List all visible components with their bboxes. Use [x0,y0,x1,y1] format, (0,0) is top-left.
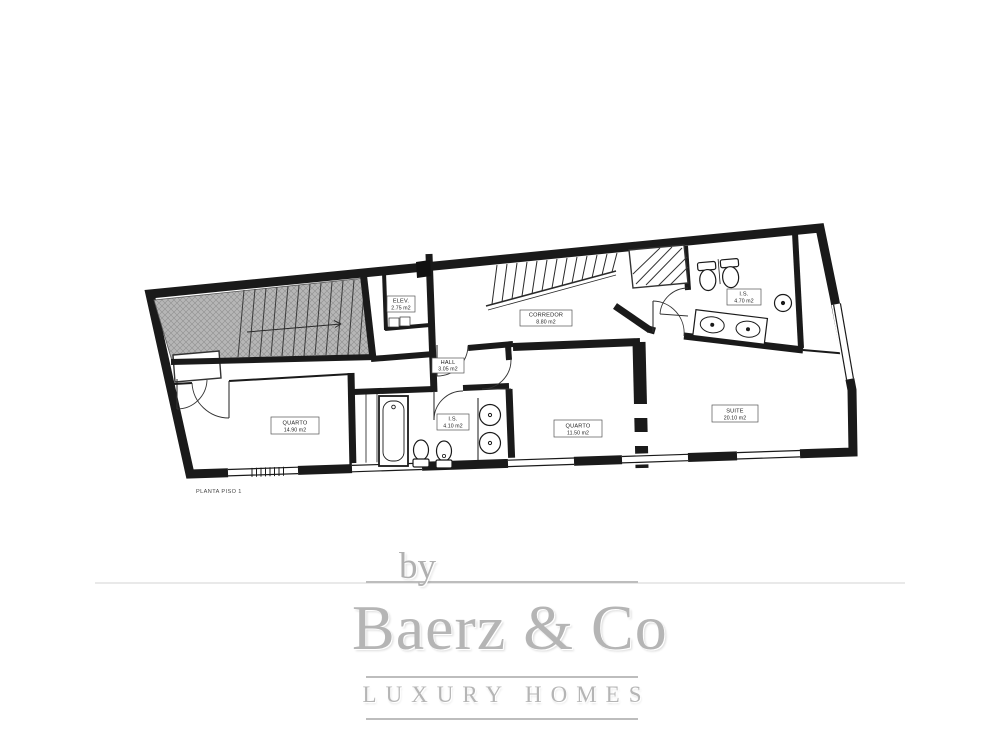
toilet-suite [697,257,740,291]
svg-text:HALL: HALL [441,360,456,366]
logo-brand-name: Baerz & Co [352,591,652,665]
logo-rule-bottom [366,718,638,720]
svg-text:I.S.: I.S. [739,292,748,298]
svg-text:CORREDOR: CORREDOR [529,313,563,319]
logo-by-text: by [399,545,436,588]
svg-text:ELEV.: ELEV. [393,299,410,305]
room-label-bathroom-2: I.S. 4.70 m2 [727,289,761,305]
room-label-corredor: CORREDOR 8.80 m2 [520,310,572,326]
svg-text:SUITE: SUITE [726,409,744,415]
room-label-quarto-1: QUARTO 14.90 m2 [271,417,319,434]
svg-text:4.70 m2: 4.70 m2 [734,299,753,305]
room-label-quarto-2: QUARTO 11.50 m2 [554,420,602,437]
svg-text:20.10 m2: 20.10 m2 [724,416,746,422]
svg-text:QUARTO: QUARTO [283,421,308,427]
svg-text:QUARTO: QUARTO [566,424,591,430]
svg-text:8.80 m2: 8.80 m2 [536,320,555,326]
bathtub [379,396,408,466]
svg-text:14.90 m2: 14.90 m2 [284,428,306,434]
page: QUARTO 14.90 m2 I.S. 4.10 m2 QUARTO 11.5… [0,0,1000,750]
elevator-shaft [416,260,431,278]
logo-rule-middle [366,676,638,678]
room-label-hall: HALL 3.05 m2 [432,358,464,373]
drawing-title: PLANTA PISO 1 [196,489,242,495]
shower-column [775,295,792,312]
wardrobe-niche [634,432,648,446]
svg-text:I.S.: I.S. [448,417,457,423]
room-label-elev: ELEV. 2.75 m2 [387,296,415,312]
toilet [413,440,429,467]
room-label-bathroom-1: I.S. 4.10 m2 [437,414,469,430]
closet-box [389,318,399,327]
logo-tagline: LUXURY HOMES [352,682,652,708]
svg-text:3.05 m2: 3.05 m2 [438,367,457,373]
wardrobe-niche [634,404,648,418]
svg-text:11.50 m2: 11.50 m2 [567,431,589,437]
washbasins-double [478,398,501,462]
svg-text:4.10 m2: 4.10 m2 [443,424,462,430]
room-label-suite: SUITE 20.10 m2 [712,405,758,422]
svg-text:2.75 m2: 2.75 m2 [391,306,410,312]
bidet [436,441,452,468]
closet-box [400,317,410,326]
closet-hatch [629,245,688,288]
